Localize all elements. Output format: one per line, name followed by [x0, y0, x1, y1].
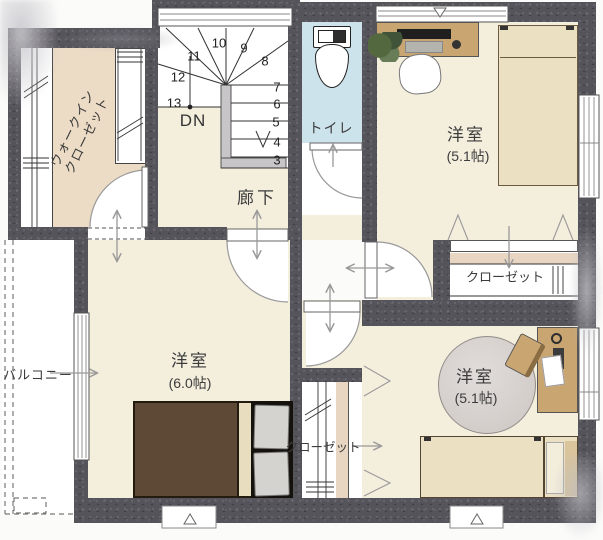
walk-in-closet-shelf-right	[115, 48, 147, 164]
wall-closet-ne-left	[433, 240, 450, 300]
bed-w-sheet-strip	[239, 401, 251, 498]
wall-stairs-toilet	[288, 8, 302, 240]
stairs-dn-label: DN	[180, 111, 207, 131]
stair-step-12: 12	[171, 70, 185, 85]
wall-above-stair-window	[152, 0, 300, 10]
bedroom-w-size: (6.0帖)	[169, 373, 212, 393]
closet-ne-track	[450, 240, 578, 252]
paper-se	[541, 355, 565, 387]
wall-wic-bottom	[8, 227, 88, 240]
toilet-door-area	[302, 143, 362, 215]
stair-step-7: 7	[273, 80, 280, 95]
closet-ne-shelf-strip	[450, 253, 578, 264]
pillow-se	[546, 442, 564, 494]
wall-balcony-lower	[74, 460, 88, 500]
hallway-label: 廊下	[237, 184, 277, 209]
wall-balcony-upper	[74, 240, 88, 313]
wall-top-left	[8, 28, 160, 48]
wall-wic-stairs	[145, 48, 158, 227]
wall-right	[578, 2, 596, 498]
bed-ne	[498, 25, 578, 186]
stair-step-10: 10	[212, 36, 226, 51]
pillow-w-1	[253, 405, 289, 450]
closet-se-label: クローゼット	[285, 437, 360, 456]
toilet-label: トイレ	[309, 118, 354, 138]
bedroom-se-name: 洋室	[456, 363, 494, 388]
toilet-flush-icon	[333, 31, 345, 42]
hallway-floor-east	[377, 240, 433, 300]
bedroom-w-name: 洋室	[171, 347, 209, 372]
hallway-doorway-west	[227, 227, 288, 240]
plant-icon	[368, 32, 406, 62]
bedroom-ne-name: 洋室	[447, 121, 485, 146]
stair-step-6: 6	[273, 97, 280, 112]
desk-lamp-ne	[452, 40, 461, 49]
desk-lamp-se	[551, 333, 562, 344]
bed-ne-pillow-line	[500, 57, 576, 58]
stair-step-4: 4	[273, 135, 280, 150]
bedroom-ne-size: (5.1帖)	[447, 146, 490, 166]
wall-left-upper	[8, 28, 21, 240]
stair-step-8: 8	[261, 54, 268, 69]
wall-stair-window-jamb	[152, 8, 160, 28]
wall-closet-se-top	[302, 368, 362, 382]
walk-in-closet-shelf-left	[21, 48, 53, 227]
balcony-label: バルコニー	[3, 365, 73, 384]
wall-bedroom-se-top	[362, 300, 578, 326]
wall-top-right	[290, 2, 596, 22]
bed-w-blanket	[133, 401, 239, 498]
stair-step-3: 3	[273, 153, 280, 168]
pillow-w-2	[253, 451, 290, 496]
stair-step-5: 5	[272, 115, 279, 130]
stair-step-13: 13	[167, 96, 181, 111]
stair-step-11: 11	[187, 49, 201, 64]
stair-step-9: 9	[240, 41, 247, 56]
wall-bottom	[74, 498, 596, 523]
wall-hall-south-west	[145, 227, 227, 240]
closet-ne-label: クローゼット	[466, 267, 544, 286]
keyboard-ne	[405, 41, 443, 53]
bed-se-divider	[543, 437, 545, 497]
bedroom-se-size: (5.1帖)	[455, 388, 498, 408]
bed-se-head-strip	[565, 441, 577, 496]
bedroom-se-entry-nook	[302, 300, 362, 368]
hallway-floor-toilet-side	[302, 215, 362, 240]
floorplan: ウォークイン クローゼット 廊下 トイレ 洋室 (5.1帖) 洋室 (6.0帖)…	[0, 0, 603, 540]
